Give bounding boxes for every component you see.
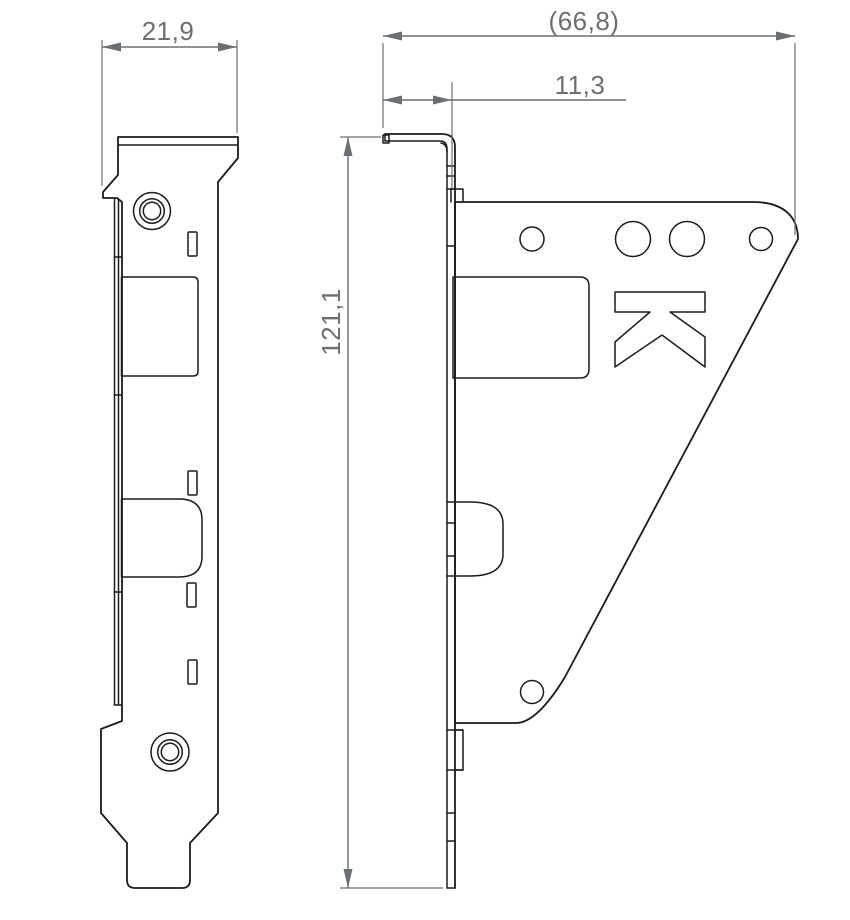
dimension-label: 121,1: [316, 288, 346, 356]
vent-slot-1: [188, 232, 197, 256]
mounting-hole-bottom: [521, 681, 544, 704]
latch-cutout: [122, 499, 203, 577]
dimension-label: 21,9: [142, 16, 195, 46]
fold-seam-inner: [115, 199, 123, 705]
screw-hole-bottom-boss: [151, 733, 189, 771]
dimension-label: (66,8): [549, 6, 620, 36]
arrowhead-right: [433, 96, 452, 105]
bracket-edge-inner: [385, 134, 455, 888]
screw-hole-bottom: [151, 733, 189, 771]
front-view: [383, 134, 798, 888]
extension-line: [340, 137, 443, 888]
gusset-plate-outline: [455, 202, 798, 723]
screw-hole-top: [134, 193, 171, 230]
arrowhead-left: [383, 96, 402, 105]
arrowhead-left: [383, 32, 402, 41]
mounting-hole-large-2: [670, 222, 705, 257]
top-hook-tab: [451, 189, 463, 202]
connector-opening: [453, 277, 589, 378]
side-view: [101, 137, 238, 888]
mounting-hole-small-right: [750, 228, 773, 251]
k-logo-cutout: [615, 292, 705, 367]
screw-hole-top-bore: [143, 202, 160, 219]
dimension-tab-width: 21,9: [102, 16, 237, 186]
arrowhead-bottom: [344, 869, 353, 888]
dimension-overall-depth: (66,8): [383, 6, 795, 235]
lower-hook-tab: [455, 730, 463, 770]
bracket-edge-outer: [385, 134, 455, 888]
pci-bracket-drawing: 21,9 (66,8) 11,3 121,1: [0, 0, 850, 920]
arrowhead-left: [102, 43, 121, 52]
dimension-overall-height: 121,1: [316, 137, 443, 888]
vent-slot-2: [188, 471, 197, 495]
dimension-label: 11,3: [555, 70, 606, 100]
screw-hole-bottom-bore: [161, 743, 178, 760]
arrowhead-right: [776, 32, 795, 41]
vent-slot-3: [187, 583, 196, 607]
dimension-flange-offset: 11,3: [383, 70, 626, 188]
flange-left-cap: [383, 135, 389, 143]
arrowhead-right: [218, 43, 237, 52]
technical-drawing-page: 21,9 (66,8) 11,3 121,1: [0, 0, 850, 920]
io-cutout: [122, 277, 199, 376]
mounting-hole-small-left: [520, 227, 544, 251]
arrowhead-top: [344, 137, 353, 156]
mounting-hole-large-1: [616, 222, 651, 257]
extension-line: [102, 40, 237, 186]
vent-slot-4: [188, 660, 197, 684]
